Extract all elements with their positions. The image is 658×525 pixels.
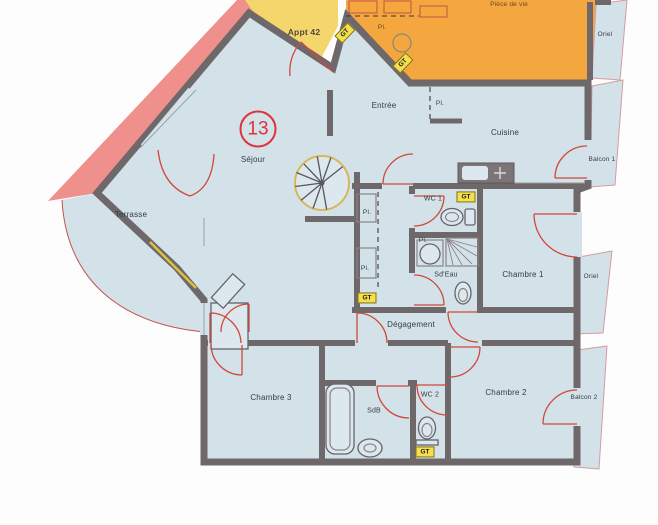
bathtub-icon [326, 384, 354, 454]
label-wc1: WC 1 [424, 196, 442, 203]
label-placard-corridor-1: Pl. [363, 210, 371, 217]
label-placard-sdeau: Pl. [419, 238, 427, 245]
label-entree: Entrée [372, 102, 397, 110]
label-placard-entree: Pl. [436, 101, 444, 108]
bidet-icon [455, 282, 471, 304]
sdb-washbasin-icon [358, 439, 382, 457]
label-sejour: Séjour [241, 156, 265, 164]
wc1-toilet-icon [441, 209, 475, 226]
kitchen-sink-icon [458, 163, 514, 183]
label-placard-orange: Pl. [378, 25, 386, 32]
label-degagement: Dégagement [387, 321, 435, 329]
oriel-top-strip [592, 0, 627, 80]
label-balcon2: Balcon 2 [571, 395, 598, 402]
floorplan-drawing [0, 0, 658, 525]
label-balcon1: Balcon 1 [589, 157, 616, 164]
label-cuisine: Cuisine [491, 129, 519, 137]
label-chambre3: Chambre 3 [250, 394, 291, 402]
label-chambre1: Chambre 1 [502, 271, 543, 279]
label-appt42: Appt 42 [288, 28, 321, 37]
apartment-number-badge: 13 [240, 111, 277, 148]
label-terrasse: Terrasse [115, 211, 147, 219]
label-oriel-top: Oriel [598, 32, 613, 39]
balcon1-strip [590, 80, 623, 187]
label-wc2: WC 2 [421, 392, 439, 399]
spiral-staircase-icon [295, 156, 349, 210]
label-sdb: SdB [367, 408, 381, 415]
label-oriel-right: Oriel [584, 274, 599, 281]
floorplan-page: Appt 42 Pièce de vie Oriel Pl. Entrée Pl… [0, 0, 658, 525]
label-sdeau: Sd'Eau [434, 272, 458, 279]
gt-marker-4: GT [357, 292, 376, 303]
label-piece-de-vie: Pièce de vie [490, 2, 528, 9]
label-placard-corridor-2: Pl. [361, 266, 369, 273]
gt-marker-3: GT [456, 191, 475, 202]
gt-marker-5: GT [415, 446, 434, 457]
label-chambre2: Chambre 2 [485, 389, 526, 397]
